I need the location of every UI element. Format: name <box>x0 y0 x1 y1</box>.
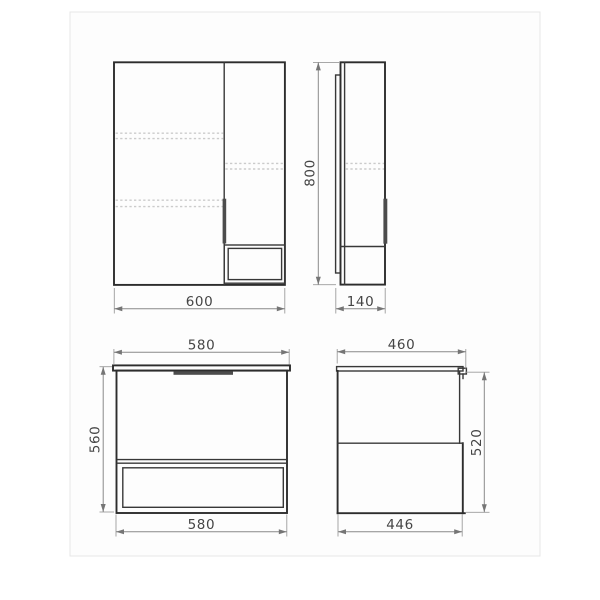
dim-text-vanity-height: 560 <box>88 426 104 454</box>
dim-text-mirror-depth: 140 <box>347 294 375 310</box>
dim-text-vanity-side-height: 520 <box>469 429 485 457</box>
dim-text-mirror-width: 600 <box>186 294 214 310</box>
dim-text-mirror-height: 800 <box>302 159 318 187</box>
technical-drawing: 600 800 140 <box>0 0 600 600</box>
dim-text-vanity-bottom-width: 580 <box>188 517 216 533</box>
recessed-handle <box>174 371 234 375</box>
dim-text-vanity-bottom-depth: 446 <box>386 517 414 533</box>
dim-text-vanity-top-depth: 460 <box>388 337 416 353</box>
dim-text-vanity-top-width: 580 <box>188 337 216 353</box>
door-handle <box>223 199 227 244</box>
door-handle-side <box>383 199 387 244</box>
drawing-canvas: 600 800 140 <box>0 0 600 600</box>
